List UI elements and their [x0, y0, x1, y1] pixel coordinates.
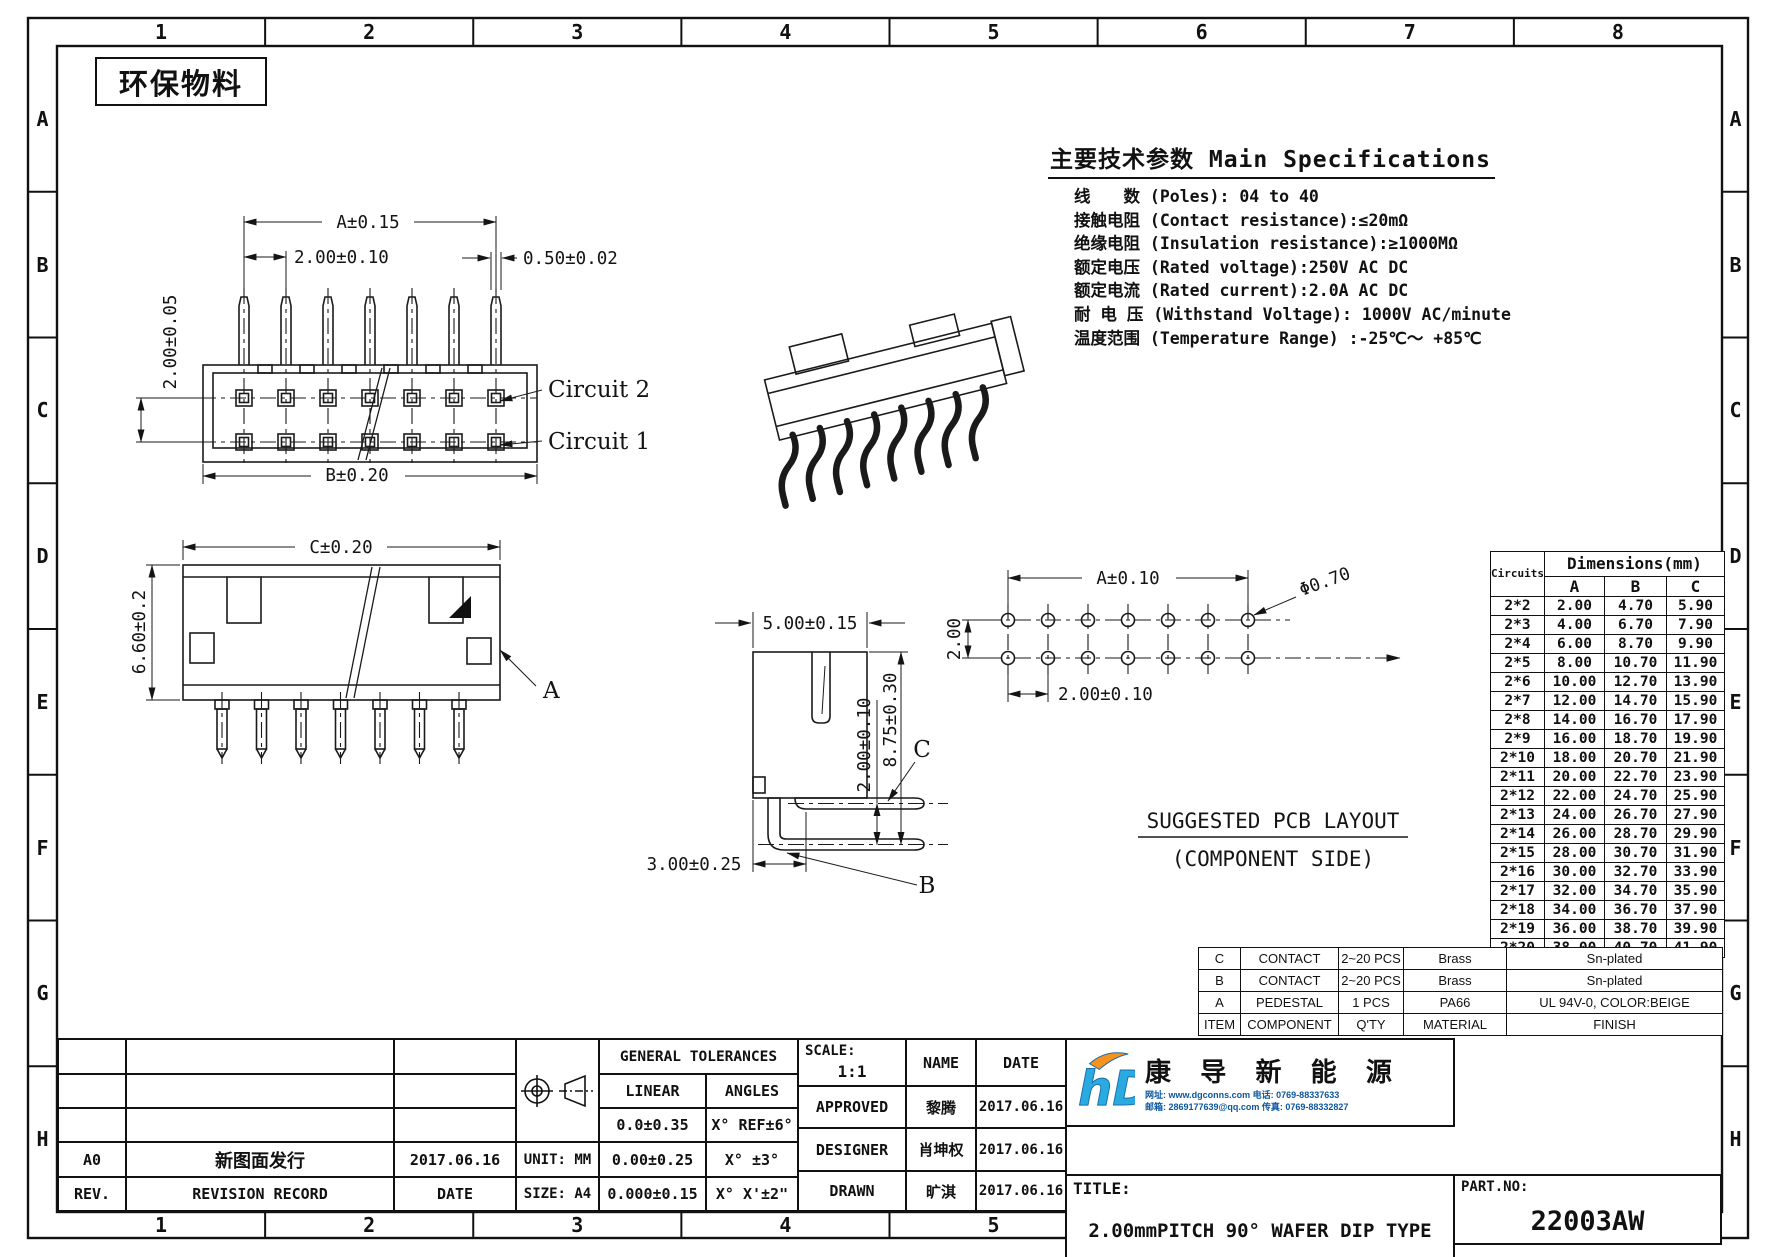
dims-cell: 2*5	[1491, 654, 1545, 673]
dims-cell: 12.70	[1604, 673, 1666, 692]
linear-header: LINEAR	[598, 1073, 707, 1109]
dims-cell: 19.90	[1666, 730, 1724, 749]
bom-cell: MATERIAL	[1404, 1014, 1507, 1036]
dims-cell: 8.70	[1604, 635, 1666, 654]
dims-cell: 26.70	[1604, 806, 1666, 825]
dims-cell: 32.00	[1544, 882, 1604, 901]
spec-line: 耐 电 压 (Withstand Voltage): 1000V AC/minu…	[1074, 303, 1508, 327]
signoff-name: 肖坤权	[905, 1127, 977, 1172]
bom-cell: Brass	[1404, 970, 1507, 992]
signoff-row: DESIGNER肖坤权2017.06.16	[797, 1127, 1067, 1172]
dims-cell: 37.90	[1666, 901, 1724, 920]
dims-cell: 10.70	[1604, 654, 1666, 673]
signoff-date: 2017.06.16	[975, 1127, 1067, 1172]
revision-cell	[393, 1038, 517, 1075]
dims-cell: 32.70	[1604, 863, 1666, 882]
revision-row	[57, 1073, 517, 1109]
dims-cell: 20.70	[1604, 749, 1666, 768]
dims-cell: 23.90	[1666, 768, 1724, 787]
name-header: NAME	[905, 1038, 977, 1087]
bom-cell: ITEM	[1199, 1014, 1241, 1036]
dims-cell: 30.70	[1604, 844, 1666, 863]
dims-cell: 15.90	[1666, 692, 1724, 711]
dims-cell: 18.70	[1604, 730, 1666, 749]
bom-cell: PA66	[1404, 992, 1507, 1014]
dims-cell: 2*13	[1491, 806, 1545, 825]
bom-cell: PEDESTAL	[1241, 992, 1339, 1014]
revision-cell: 2017.06.16	[393, 1141, 517, 1178]
size-cell: SIZE: A4	[515, 1176, 600, 1212]
signoff-row: DRAWN旷淇2017.06.16	[797, 1170, 1067, 1212]
dims-cell: 2.00	[1544, 597, 1604, 616]
grid-row-label: F	[29, 775, 56, 921]
part-no-value: 22003AW	[1455, 1206, 1720, 1237]
revision-row: REV.REVISION RECORDDATE	[57, 1176, 517, 1212]
grid-row-label: B	[1722, 192, 1749, 338]
dims-cell: 14.70	[1604, 692, 1666, 711]
dims-cell: 20.00	[1544, 768, 1604, 787]
signoff-role: DESIGNER	[797, 1127, 907, 1172]
bom-cell: Brass	[1404, 948, 1507, 970]
unit-cell: UNIT: MM	[515, 1141, 600, 1178]
signoff-name: 旷淇	[905, 1170, 977, 1212]
revision-cell	[125, 1107, 395, 1143]
revision-cell	[125, 1038, 395, 1075]
dims-cell: 7.90	[1666, 616, 1724, 635]
dimensions-table: CircuitsDimensions(mm)ABC2*22.004.705.90…	[1490, 551, 1725, 958]
company-cell: hD 康 导 新 能 源 网址: www.dgconns.com 电话: 076…	[1065, 1038, 1455, 1127]
part-no-label: PART.NO:	[1461, 1179, 1528, 1195]
dims-cell: 34.00	[1544, 901, 1604, 920]
part-no-cell: PART.NO: 22003AW	[1453, 1174, 1722, 1245]
spec-line: 额定电压 (Rated voltage):250V AC DC	[1074, 256, 1508, 280]
grid-row-label: C	[29, 338, 56, 484]
company-contact-1: 网址: www.dgconns.com 电话: 0769-88337633	[1145, 1089, 1403, 1102]
dims-cell: 16.70	[1604, 711, 1666, 730]
bom-cell: FINISH	[1507, 1014, 1723, 1036]
tolerance-row: 0.0±0.35X° REF±6°	[598, 1107, 799, 1143]
spec-line: 额定电流 (Rated current):2.0A AC DC	[1074, 279, 1508, 303]
revision-cell	[125, 1073, 395, 1109]
dims-cell: 9.90	[1666, 635, 1724, 654]
dims-cell: 18.00	[1544, 749, 1604, 768]
dims-cell: 12.00	[1544, 692, 1604, 711]
drawing-sheet: 12345678 12345678 ABCDEFGH ABCDEFGH 环保物料…	[0, 0, 1778, 1257]
bom-cell: Sn-plated	[1507, 948, 1723, 970]
dims-cell: 2*4	[1491, 635, 1545, 654]
dims-cell: 2*10	[1491, 749, 1545, 768]
dims-cell: 2*11	[1491, 768, 1545, 787]
dims-cell: 26.00	[1544, 825, 1604, 844]
grid-col-label: 1	[57, 1213, 265, 1237]
grid-col-label: 2	[265, 20, 473, 44]
bom-cell: CONTACT	[1241, 948, 1339, 970]
bom-cell: B	[1199, 970, 1241, 992]
tolerance-angle: X° X'±2"	[705, 1176, 799, 1212]
spec-line: 接触电阻 (Contact resistance):≤20mΩ	[1074, 209, 1508, 233]
revision-row	[57, 1107, 517, 1143]
tolerance-row: 0.000±0.15X° X'±2"	[598, 1176, 799, 1212]
scale-cell: SCALE: 1:1	[797, 1038, 907, 1087]
grid-row-label: F	[1722, 775, 1749, 921]
projection-symbol-icon	[519, 1071, 597, 1111]
tolerance-linear: 0.00±0.25	[598, 1141, 707, 1178]
company-contact-2: 邮箱: 2869177639@qq.com 传真: 0769-88332827	[1145, 1101, 1403, 1114]
dims-cell: 2*8	[1491, 711, 1545, 730]
grid-row-label: D	[1722, 483, 1749, 629]
dims-cell: 6.00	[1544, 635, 1604, 654]
dims-cell: 4.70	[1604, 597, 1666, 616]
dims-cell: 38.70	[1604, 920, 1666, 939]
grid-col-label: 2	[265, 1213, 473, 1237]
title-label: TITLE:	[1073, 1179, 1131, 1198]
signoff-role: DRAWN	[797, 1170, 907, 1212]
signoff-date: 2017.06.16	[975, 1085, 1067, 1129]
grid-col-label: 6	[1098, 20, 1306, 44]
revision-cell: REVISION RECORD	[125, 1176, 395, 1212]
dims-cell: 10.00	[1544, 673, 1604, 692]
revision-cell: A0	[57, 1141, 127, 1178]
revision-cell	[57, 1038, 127, 1075]
dims-cell: 35.90	[1666, 882, 1724, 901]
dims-cell: 22.70	[1604, 768, 1666, 787]
grid-col-label: 8	[1514, 20, 1722, 44]
dims-cell: 2*7	[1491, 692, 1545, 711]
bom-cell: C	[1199, 948, 1241, 970]
revision-cell: REV.	[57, 1176, 127, 1212]
bom-cell: UL 94V-0, COLOR:BEIGE	[1507, 992, 1723, 1014]
dims-cell: 2*2	[1491, 597, 1545, 616]
dimensions-table-grid: CircuitsDimensions(mm)ABC2*22.004.705.90…	[1490, 551, 1725, 958]
dims-cell: 21.90	[1666, 749, 1724, 768]
company-name: 康 导 新 能 源	[1145, 1052, 1403, 1089]
main-specifications: 主要技术参数 Main Specifications 线 数 (Poles): …	[1048, 140, 1508, 350]
grid-row-label: H	[1722, 1066, 1749, 1212]
dims-cell: 17.90	[1666, 711, 1724, 730]
dims-cell: 24.70	[1604, 787, 1666, 806]
dims-cell: 28.00	[1544, 844, 1604, 863]
dims-cell: 14.00	[1544, 711, 1604, 730]
signoff-rows: APPROVED黎腾2017.06.16DESIGNER肖坤权2017.06.1…	[797, 1085, 1067, 1212]
tolerances-header: GENERAL TOLERANCES	[598, 1038, 799, 1075]
angles-header: ANGLES	[705, 1073, 799, 1109]
dims-cell: 36.00	[1544, 920, 1604, 939]
tolerance-rows: 0.0±0.35X° REF±6°0.00±0.25X° ±3°0.000±0.…	[598, 1107, 799, 1212]
grid-col-label: 4	[681, 20, 889, 44]
bom-cell: 1 PCS	[1339, 992, 1404, 1014]
dims-cell: 33.90	[1666, 863, 1724, 882]
dims-cell: 8.00	[1544, 654, 1604, 673]
dims-cell: 22.00	[1544, 787, 1604, 806]
dims-cell: 25.90	[1666, 787, 1724, 806]
bom-table-grid: CCONTACT2~20 PCSBrassSn-platedBCONTACT2~…	[1198, 947, 1723, 1036]
dims-cell: 4.00	[1544, 616, 1604, 635]
signoff-role: APPROVED	[797, 1085, 907, 1129]
dims-cell: 2*18	[1491, 901, 1545, 920]
projection-symbol-cell	[515, 1038, 600, 1143]
grid-row-label: G	[29, 921, 56, 1067]
revision-cell	[393, 1107, 517, 1143]
grid-col-label: 4	[681, 1213, 889, 1237]
revision-row: A0新图面发行2017.06.16	[57, 1141, 517, 1178]
scale-label: SCALE:	[805, 1043, 856, 1059]
dims-cell: 2*15	[1491, 844, 1545, 863]
dims-cell: 34.70	[1604, 882, 1666, 901]
revision-cell	[57, 1073, 127, 1109]
dims-cell: 6.70	[1604, 616, 1666, 635]
revision-cell	[57, 1107, 127, 1143]
bom-cell: CONTACT	[1241, 970, 1339, 992]
dims-cell: 27.90	[1666, 806, 1724, 825]
signoff-date: 2017.06.16	[975, 1170, 1067, 1212]
grid-row-label: D	[29, 483, 56, 629]
tolerance-row: 0.00±0.25X° ±3°	[598, 1141, 799, 1178]
grid-col-label: 1	[57, 20, 265, 44]
tolerance-linear: 0.0±0.35	[598, 1107, 707, 1143]
tolerance-angle: X° REF±6°	[705, 1107, 799, 1143]
date-header: DATE	[975, 1038, 1067, 1087]
spec-line: 温度范围 (Temperature Range) :-25℃～ +85℃	[1074, 327, 1508, 351]
dims-cell: 13.90	[1666, 673, 1724, 692]
bom-cell: A	[1199, 992, 1241, 1014]
dims-cell: 16.00	[1544, 730, 1604, 749]
revision-cell: DATE	[393, 1176, 517, 1212]
bom-cell: COMPONENT	[1241, 1014, 1339, 1036]
specs-title: 主要技术参数 Main Specifications	[1048, 140, 1495, 179]
revision-cell	[393, 1073, 517, 1109]
bom-cell: 2~20 PCS	[1339, 970, 1404, 992]
bom-cell: Sn-plated	[1507, 970, 1723, 992]
company-logo: hD	[1077, 1047, 1135, 1119]
grid-row-label: C	[1722, 338, 1749, 484]
dims-cell: 11.90	[1666, 654, 1724, 673]
spec-line: 绝缘电阻 (Insulation resistance):≥1000MΩ	[1074, 232, 1508, 256]
dims-cell: 24.00	[1544, 806, 1604, 825]
dims-cell: 2*19	[1491, 920, 1545, 939]
grid-row-label: A	[29, 46, 56, 192]
grid-row-label: E	[1722, 629, 1749, 775]
grid-col-label: 5	[890, 20, 1098, 44]
bom-table: CCONTACT2~20 PCSBrassSn-platedBCONTACT2~…	[1198, 947, 1723, 1036]
signoff-name: 黎腾	[905, 1085, 977, 1129]
dims-cell: 2*16	[1491, 863, 1545, 882]
grid-row-label: A	[1722, 46, 1749, 192]
revision-table: A0新图面发行2017.06.16REV.REVISION RECORDDATE	[57, 1038, 517, 1212]
grid-col-label: 3	[473, 20, 681, 44]
dims-cell: 2*3	[1491, 616, 1545, 635]
grid-row-label: B	[29, 192, 56, 338]
dims-cell: 30.00	[1544, 863, 1604, 882]
grid-col-label: 3	[473, 1213, 681, 1237]
dims-cell: 39.90	[1666, 920, 1724, 939]
dims-cell: 2*12	[1491, 787, 1545, 806]
title-cell: TITLE: 2.00mmPITCH 90° WAFER DIP TYPE	[1065, 1174, 1455, 1257]
signoff-row: APPROVED黎腾2017.06.16	[797, 1085, 1067, 1129]
scale-value: 1:1	[799, 1062, 905, 1081]
revision-row	[57, 1038, 517, 1075]
dims-cell: 2*6	[1491, 673, 1545, 692]
dims-cell: 29.90	[1666, 825, 1724, 844]
dims-cell: 31.90	[1666, 844, 1724, 863]
bom-cell: Q'TY	[1339, 1014, 1404, 1036]
svg-text:hD: hD	[1078, 1061, 1135, 1117]
drawing-title: 2.00mmPITCH 90° WAFER DIP TYPE	[1067, 1220, 1453, 1242]
tolerance-angle: X° ±3°	[705, 1141, 799, 1178]
dims-cell: 5.90	[1666, 597, 1724, 616]
grid-row-label: E	[29, 629, 56, 775]
dims-cell: 36.70	[1604, 901, 1666, 920]
grid-col-label: 7	[1306, 20, 1514, 44]
spec-line: 线 数 (Poles): 04 to 40	[1074, 185, 1508, 209]
grid-row-label: H	[29, 1066, 56, 1212]
tolerance-linear: 0.000±0.15	[598, 1176, 707, 1212]
dims-cell: 2*17	[1491, 882, 1545, 901]
dims-cell: 28.70	[1604, 825, 1666, 844]
eco-material-stamp: 环保物料	[95, 57, 267, 106]
grid-row-label: G	[1722, 921, 1749, 1067]
dims-cell: 2*14	[1491, 825, 1545, 844]
bom-cell: 2~20 PCS	[1339, 948, 1404, 970]
dims-cell: 2*9	[1491, 730, 1545, 749]
revision-cell: 新图面发行	[125, 1141, 395, 1178]
